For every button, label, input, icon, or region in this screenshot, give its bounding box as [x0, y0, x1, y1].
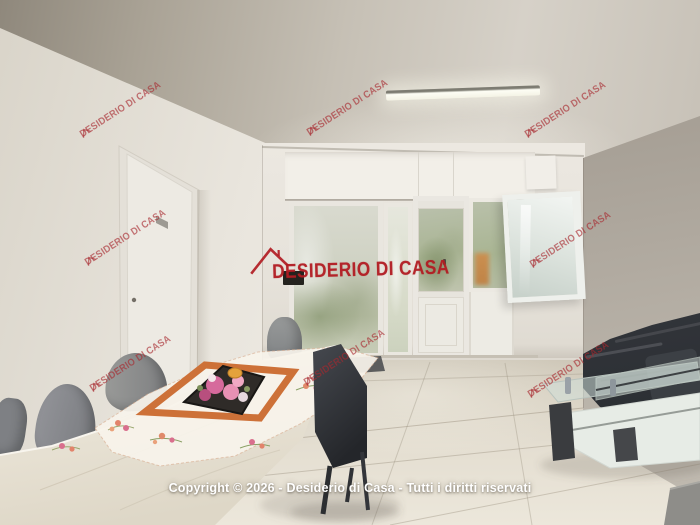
flower-dot [249, 439, 255, 445]
flower-dot [169, 437, 174, 442]
grout-line [505, 363, 532, 525]
fruit [228, 368, 242, 378]
flower-dot [123, 425, 129, 431]
flower-dot [153, 440, 157, 444]
coffee-table-leg [549, 402, 575, 461]
plate-flower [208, 374, 216, 382]
copyright-text: Copyright © 2026 - Desiderio di Casa - T… [0, 481, 700, 495]
flower-dot [259, 443, 264, 448]
flower-dot [115, 420, 121, 426]
metal-stud [565, 377, 571, 394]
central-watermark-text: DESIDERIO DI CASA [272, 257, 450, 285]
central-watermark: DESIDERIO DI CASA [250, 241, 461, 286]
flower-dot [110, 427, 115, 432]
flower-dot [159, 433, 165, 439]
plate-leaf [197, 385, 203, 391]
metal-stud [610, 379, 616, 396]
plate-leaf [244, 386, 250, 392]
plate-flower [238, 392, 248, 402]
flower-dot [59, 443, 65, 449]
flower-dot [69, 446, 74, 451]
shadow [290, 502, 400, 522]
coffee-table-leg [613, 427, 638, 462]
property-photo: DESIDERIO DI CASA DESIDERIO DI CASA DESI… [0, 0, 700, 525]
